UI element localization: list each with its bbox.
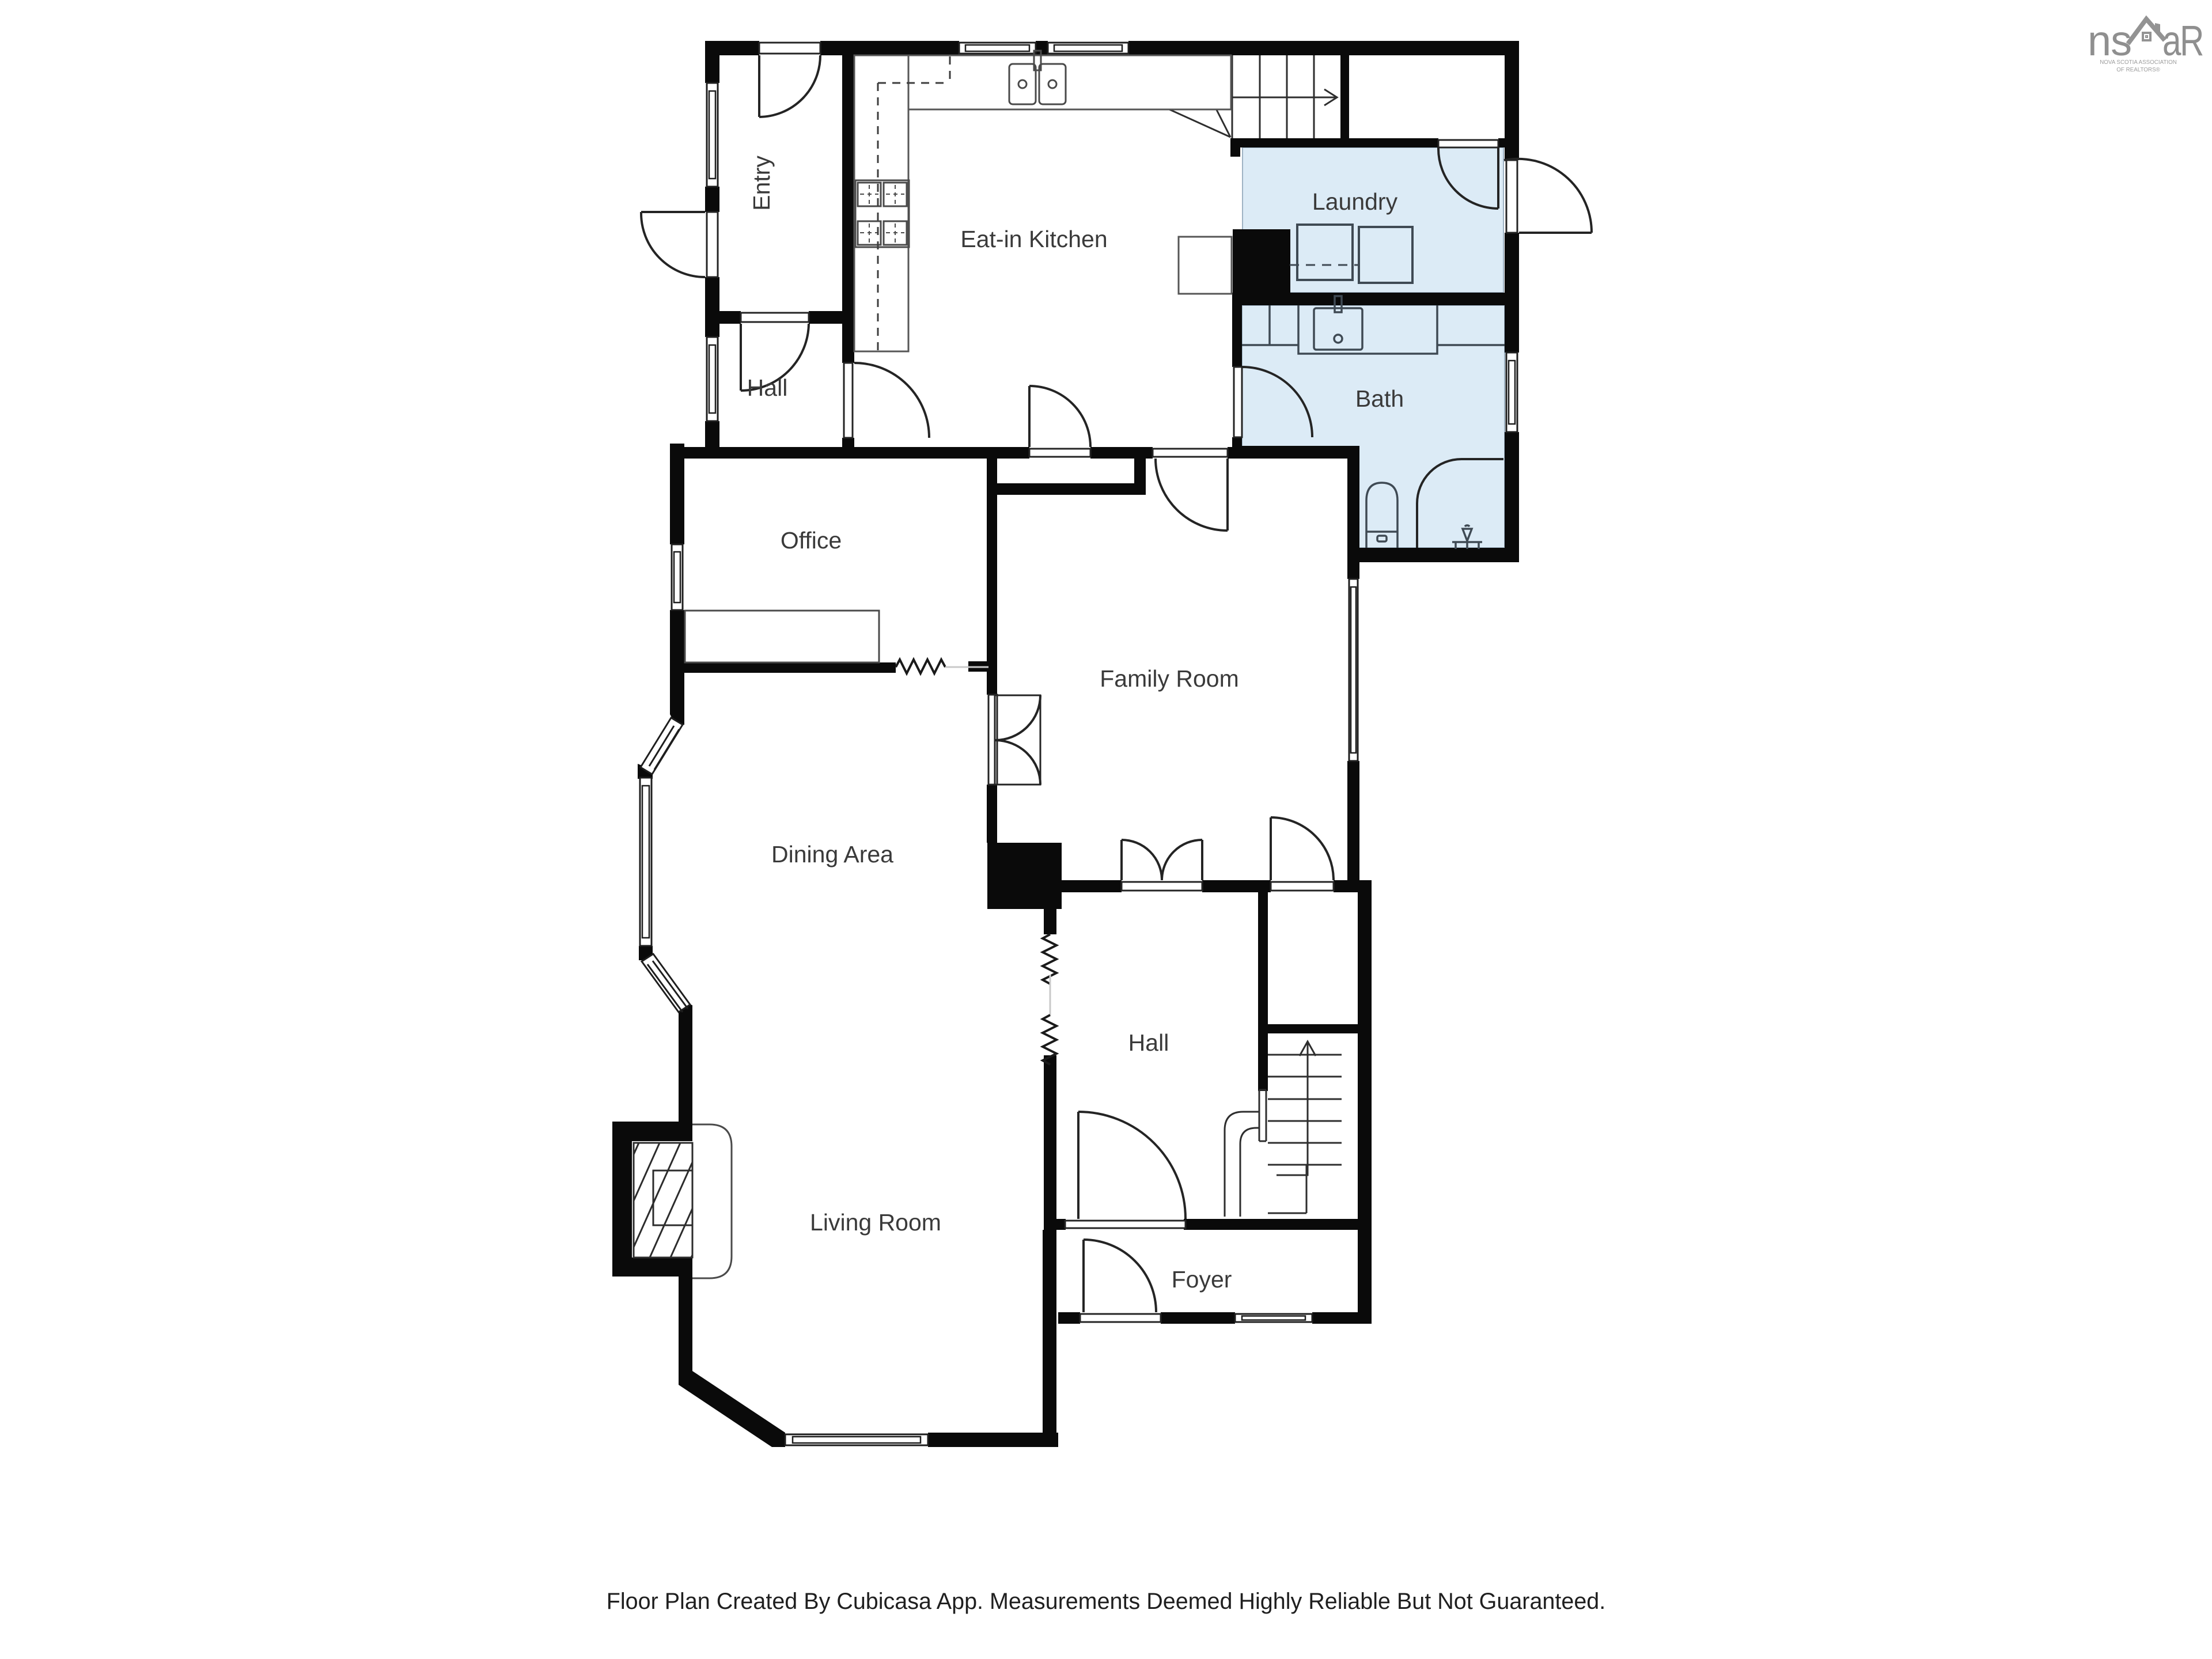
svg-text:NOVA SCOTIA ASSOCIATION: NOVA SCOTIA ASSOCIATION <box>2100 59 2177 66</box>
svg-text:OF REALTORS®: OF REALTORS® <box>2116 67 2160 73</box>
svg-text:Hall: Hall <box>747 374 788 401</box>
svg-text:Dining Area: Dining Area <box>771 841 893 868</box>
svg-text:ns: ns <box>2088 17 2131 65</box>
svg-text:Living Room: Living Room <box>810 1209 941 1236</box>
svg-text:Office: Office <box>781 527 842 554</box>
svg-text:Eat-in Kitchen: Eat-in Kitchen <box>960 226 1107 252</box>
svg-text:Family Room: Family Room <box>1100 665 1238 692</box>
svg-text:Laundry: Laundry <box>1312 188 1398 215</box>
svg-text:Foyer: Foyer <box>1172 1266 1232 1293</box>
svg-text:Floor Plan Created By Cubicasa: Floor Plan Created By Cubicasa App. Meas… <box>607 1589 1606 1614</box>
svg-text:Bath: Bath <box>1355 385 1404 412</box>
svg-text:Hall: Hall <box>1128 1029 1169 1056</box>
svg-text:Entry: Entry <box>748 156 775 211</box>
svg-text:aR: aR <box>2162 17 2203 65</box>
